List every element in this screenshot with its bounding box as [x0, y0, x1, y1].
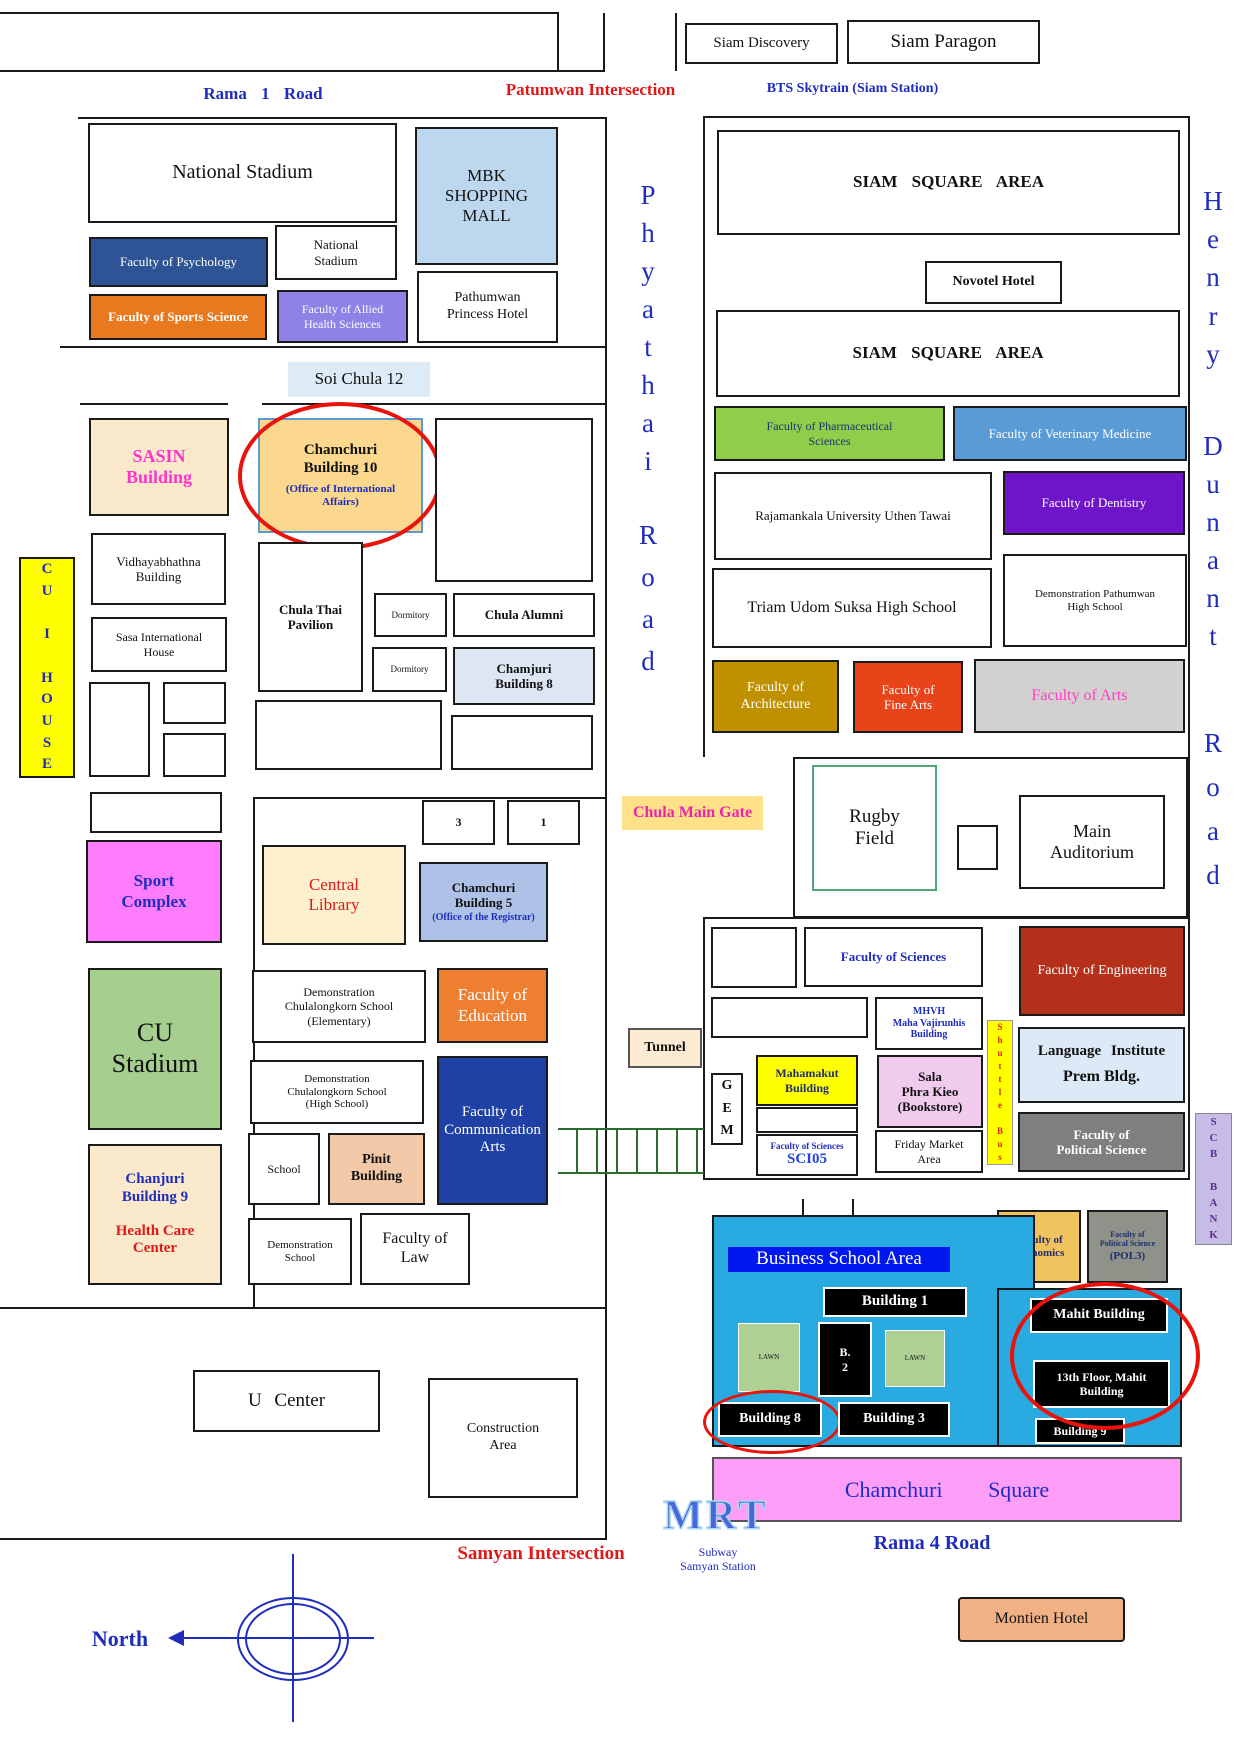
pathumwan-princess-hotel: Pathumwan Princess Hotel [417, 271, 558, 343]
unlabeled-building [435, 418, 593, 582]
samyan-intersection-label: Samyan Intersection [436, 1543, 646, 1565]
railway-crossing [558, 1128, 704, 1174]
montien-hotel: Montien Hotel [958, 1597, 1125, 1642]
sasin-building: SASIN Building [89, 418, 229, 516]
compass-inner-ring-icon [245, 1603, 341, 1675]
road-line [675, 13, 677, 71]
mbk-shopping-mall: MBK SHOPPING MALL [415, 127, 558, 265]
faculty-of-fine-arts: Faculty of Fine Arts [853, 661, 963, 733]
demonstration-school: Demonstration School [248, 1218, 352, 1285]
siam-paragon: Siam Paragon [847, 20, 1040, 64]
phyathai-road-label-road: Road [630, 515, 666, 683]
building-1: Building 1 [823, 1287, 967, 1317]
campus-map: Rama 1 Road Patumwan Intersection BTS Sk… [0, 0, 1241, 1755]
chamchuri-building-10-title: Chamchuri Building 10 [304, 442, 378, 477]
faculty-of-education: Faculty of Education [437, 968, 548, 1043]
13th-floor-mahit-building: 13th Floor, Mahit Building [1033, 1360, 1170, 1408]
demonstration-chulalongkorn-school-high: Demonstration Chulalongkorn School (High… [250, 1060, 424, 1124]
faculty-of-allied-health-sciences: Faculty of Allied Health Sciences [277, 290, 408, 343]
unlabeled-building [711, 927, 797, 988]
faculty-of-law: Faculty of Law [360, 1213, 470, 1285]
faculty-of-sciences: Faculty of Sciences [804, 927, 983, 987]
chamchuri-square: Chamchuri Square [712, 1457, 1182, 1522]
siam-square-area-2: SIAM SQUARE AREA [716, 310, 1180, 397]
novotel-hotel: Novotel Hotel [925, 261, 1062, 304]
faculty-of-political-science-pol3: Faculty of Political Science (POL3) [1087, 1210, 1168, 1283]
henry-dunant-label-dunant: Dunant [1196, 428, 1230, 656]
health-care-center-label: Health Care Center [116, 1223, 194, 1258]
dormitory-2: Dormitory [372, 647, 447, 692]
lawn-1: LAWN [738, 1323, 800, 1392]
cu-stadium: CU Stadium [88, 968, 222, 1130]
road-line [557, 12, 559, 70]
phyathai-road-label: Phyathai [630, 176, 666, 481]
unlabeled-building [255, 700, 442, 770]
building-8: Building 8 [718, 1402, 822, 1437]
faculty-of-communication-arts: Faculty of Communication Arts [437, 1056, 548, 1205]
sasa-international-house: Sasa International House [91, 617, 227, 672]
triam-udom-suksa-high-school: Triam Udom Suksa High School [712, 568, 992, 648]
cu-i-house-strip: CU I HOUSE [19, 557, 75, 778]
unlabeled-building [711, 997, 868, 1038]
rama4-road-label: Rama 4 Road [852, 1532, 1012, 1555]
scb-bank-strip: SCB BANK [1195, 1113, 1232, 1245]
faculty-of-veterinary-medicine: Faculty of Veterinary Medicine [953, 406, 1187, 461]
chamchuri-building-5-title: Chamchuri Building 5 [452, 880, 516, 911]
construction-area: Construction Area [428, 1378, 578, 1498]
chamjuri-building-8: Chamjuri Building 8 [453, 647, 595, 705]
road-line [60, 346, 605, 348]
language-institute-label: Language Institute [1038, 1043, 1165, 1061]
building-3: Building 3 [838, 1402, 950, 1437]
faculty-of-sports-science: Faculty of Sports Science [89, 294, 267, 340]
soi-chula-12-label: Soi Chula 12 [288, 362, 430, 397]
gem-building: GEM [711, 1073, 743, 1145]
unlabeled-building [163, 682, 226, 724]
faculty-of-engineering: Faculty of Engineering [1019, 926, 1185, 1016]
faculty-of-dentistry: Faculty of Dentistry [1003, 471, 1185, 535]
siam-square-area-1: SIAM SQUARE AREA [717, 130, 1180, 235]
building-3-box: 3 [422, 800, 495, 845]
chamchuri-building-5: Chamchuri Building 5 (Office of the Regi… [419, 862, 548, 942]
unlabeled-building [756, 1107, 858, 1133]
road-line-campus-south [0, 1307, 607, 1309]
pinit-building: Pinit Building [328, 1133, 425, 1205]
unlabeled-building [90, 792, 222, 833]
road-line-rama1-north [0, 70, 605, 72]
language-institute-prem-bldg: Language Institute Prem Bldg. [1018, 1027, 1185, 1103]
road-line [703, 116, 1190, 118]
mahit-building: Mahit Building [1030, 1298, 1168, 1333]
chamchuri-building-10: Chamchuri Building 10 (Office of Interna… [258, 418, 423, 533]
chula-alumni: Chula Alumni [453, 593, 595, 637]
road-line-rama1-south [78, 117, 605, 119]
subway-samyan-station-label: Subway Samyan Station [648, 1546, 788, 1574]
mhvh-maha-vajirunhis-building: MHVH Maha Vajirunhis Building [875, 997, 983, 1050]
henry-dunant-label-henry: Henry [1196, 182, 1230, 374]
faculty-of-political-science: Faculty of Political Science [1018, 1112, 1185, 1172]
building-1-box: 1 [507, 800, 580, 845]
pol3-dept-label: Faculty of Political Science [1100, 1230, 1155, 1249]
road-line [255, 797, 605, 799]
building-b2: B. 2 [818, 1322, 872, 1397]
chamchuri-building-10-subtitle: (Office of International Affairs) [286, 483, 395, 509]
unlabeled-building [163, 733, 226, 777]
patumwan-intersection-label: Patumwan Intersection [498, 80, 683, 100]
pol3-label: (POL3) [1110, 1250, 1145, 1263]
main-auditorium: Main Auditorium [1019, 795, 1165, 889]
faculty-of-psychology: Faculty of Psychology [89, 237, 268, 287]
lawn-2: LAWN [885, 1330, 945, 1387]
rajamankala-university-uthen-tawai: Rajamankala University Uthen Tawai [714, 472, 992, 560]
bts-skytrain-label: BTS Skytrain (Siam Station) [755, 81, 950, 97]
u-center: U Center [193, 1370, 380, 1432]
mahamakut-building: Mahamakut Building [756, 1055, 858, 1106]
dormitory-1: Dormitory [374, 593, 447, 637]
unlabeled-building [451, 715, 593, 770]
rama1-road-label: Rama 1 Road [178, 84, 348, 104]
national-stadium-small: National Stadium [275, 225, 397, 280]
central-library: Central Library [262, 845, 406, 945]
friday-market-area: Friday Market Area [875, 1130, 983, 1173]
unlabeled-building [957, 825, 998, 870]
shuttle-bus-strip: Shuttle Bus [987, 1020, 1013, 1165]
north-arrow-icon [168, 1630, 184, 1646]
faculty-of-sciences-sci05: Faculty of Sciences SCI05 [756, 1134, 858, 1176]
business-school-area-banner: Business School Area [728, 1247, 950, 1272]
chanjuri-building-9-health-care-center: Chanjuri Building 9 Health Care Center [88, 1144, 222, 1285]
school: School [248, 1133, 320, 1205]
demonstration-pathumwan-high-school: Demonstration Pathumwan High School [1003, 554, 1187, 647]
road-line-samyan [0, 1538, 607, 1540]
faculty-of-pharmaceutical-sciences: Faculty of Pharmaceutical Sciences [714, 406, 945, 461]
rugby-field: Rugby Field [812, 765, 937, 891]
national-stadium: National Stadium [88, 123, 397, 223]
demonstration-chulalongkorn-school-elementary: Demonstration Chulalongkorn School (Elem… [252, 970, 426, 1043]
chula-main-gate-label: Chula Main Gate [622, 796, 763, 830]
vidhayabhathna-building: Vidhayabhathna Building [91, 533, 226, 605]
mrt-label: MRT [656, 1492, 776, 1540]
prem-bldg-label: Prem Bldg. [1063, 1068, 1140, 1087]
sport-complex: Sport Complex [86, 840, 222, 943]
henry-dunant-label-road: Road [1196, 722, 1230, 897]
north-label: North [75, 1626, 165, 1651]
road-line [262, 403, 605, 405]
road-line [0, 12, 557, 14]
road-line-phyathai-east [703, 116, 705, 757]
unlabeled-building [89, 682, 150, 777]
building-9: Building 9 [1035, 1418, 1125, 1444]
road-line-phyathai-west [605, 117, 607, 1538]
sci05-dept-label: Faculty of Sciences [771, 1141, 844, 1152]
sala-phra-kieo-bookstore: Sala Phra Kieo (Bookstore) [877, 1055, 983, 1128]
siam-discovery: Siam Discovery [685, 23, 838, 64]
chula-thai-pavilion: Chula Thai Pavilion [258, 542, 363, 692]
sci05-label: SCI05 [787, 1151, 827, 1169]
faculty-of-architecture: Faculty of Architecture [712, 660, 839, 733]
road-line [603, 13, 605, 71]
chanjuri-building-9-title: Chanjuri Building 9 [122, 1171, 188, 1206]
road-line [80, 403, 228, 405]
chamchuri-building-5-subtitle: (Office of the Registrar) [432, 912, 534, 924]
faculty-of-arts: Faculty of Arts [974, 659, 1185, 733]
tunnel-label: Tunnel [628, 1028, 702, 1068]
